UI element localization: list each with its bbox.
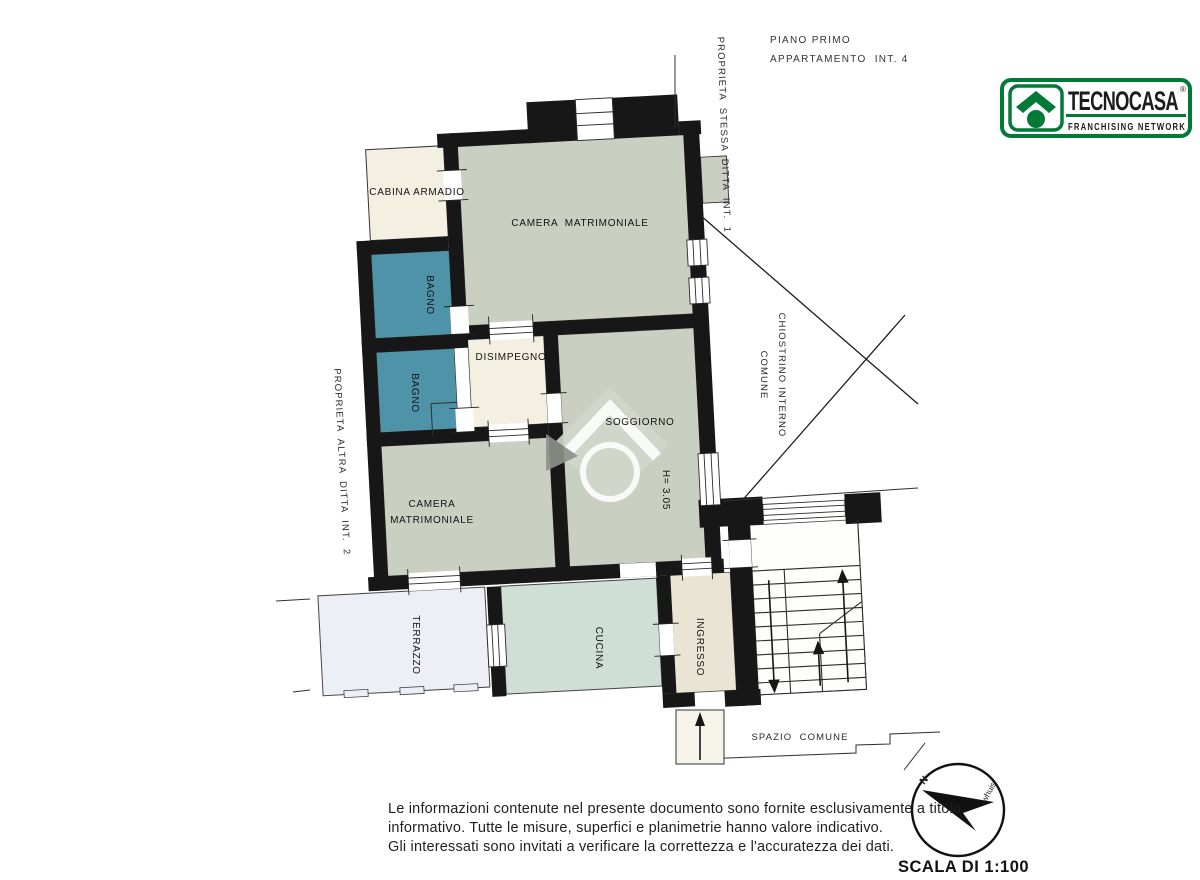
- label-chiostrino-2: COMUNE: [758, 351, 769, 400]
- floorplan-document: CABINA ARMADIO CAMERA MATRIMONIALE BAGNO…: [0, 0, 1200, 880]
- label-cabina-armadio: CABINA ARMADIO: [369, 187, 464, 198]
- room-camera-matrimoniale-1-area: [457, 133, 694, 326]
- room-camera-matrimoniale-2-area: [381, 438, 556, 577]
- spazio-comune-tail: [904, 743, 925, 770]
- compass-script-label: whuis: [978, 780, 998, 805]
- label-camera-2-line1: CAMERA: [409, 499, 456, 510]
- scale-label: SCALA DI 1:100: [898, 858, 1029, 876]
- disclaimer-line-2: informativo. Tutte le misure, superfici …: [388, 820, 883, 836]
- label-spazio-comune: SPAZIO COMUNE: [751, 732, 848, 743]
- logo-registered-mark: ®: [1180, 85, 1186, 94]
- label-chiostrino-1: CHIOSTRINO INTERNO: [776, 313, 787, 438]
- logo-divider: [1066, 114, 1186, 117]
- label-proprieta-stessa: PROPRIETA STESSA DITTA INT. 1: [715, 37, 733, 234]
- floorplan-svg: CABINA ARMADIO CAMERA MATRIMONIALE BAGNO…: [0, 0, 1200, 880]
- label-floor: PIANO PRIMO: [770, 35, 851, 46]
- terrace-ext-line-2: [293, 690, 310, 692]
- label-apartment: APPARTAMENTO INT. 4: [770, 54, 909, 65]
- label-bagno-1: BAGNO: [424, 275, 435, 315]
- disclaimer-line-3: Gli interessati sono invitati a verifica…: [388, 839, 894, 855]
- room-bagno-1-area: [371, 251, 453, 339]
- room-disimpegno-area: [468, 336, 549, 428]
- terrace-ext-line-1: [276, 599, 310, 601]
- label-terrazzo: TERRAZZO: [410, 615, 421, 675]
- entrance-vestibule: [676, 710, 724, 764]
- label-cucina: CUCINA: [593, 627, 604, 670]
- label-camera-matrimoniale-1: CAMERA MATRIMONIALE: [511, 218, 648, 229]
- footer: Le informazioni contenute nel presente d…: [388, 801, 1029, 876]
- disclaimer-line-1: Le informazioni contenute nel presente d…: [388, 801, 961, 817]
- label-disimpegno: DISIMPEGNO: [476, 352, 547, 363]
- tecnocasa-logo: TECNOCASA ® FRANCHISING NETWORK: [1002, 80, 1190, 136]
- chiostrino-cross-line-1: [700, 215, 918, 404]
- chiostrino-cross-line-2: [740, 315, 905, 503]
- room-cucina-area: [501, 578, 662, 694]
- label-proprieta-altra: PROPRIETA ALTRA DITTA INT. 2: [331, 368, 352, 556]
- label-ingresso: INGRESSO: [694, 618, 705, 676]
- room-terrazzo-area: [318, 587, 490, 696]
- logo-brand-text: TECNOCASA: [1068, 86, 1178, 116]
- label-camera-2-line2: MATRIMONIALE: [390, 515, 474, 526]
- label-bagno-2: BAGNO: [409, 373, 420, 413]
- label-altezza: H= 3.05: [660, 470, 671, 510]
- logo-tagline-text: FRANCHISING NETWORK: [1068, 122, 1186, 133]
- label-soggiorno: SOGGIORNO: [605, 417, 674, 428]
